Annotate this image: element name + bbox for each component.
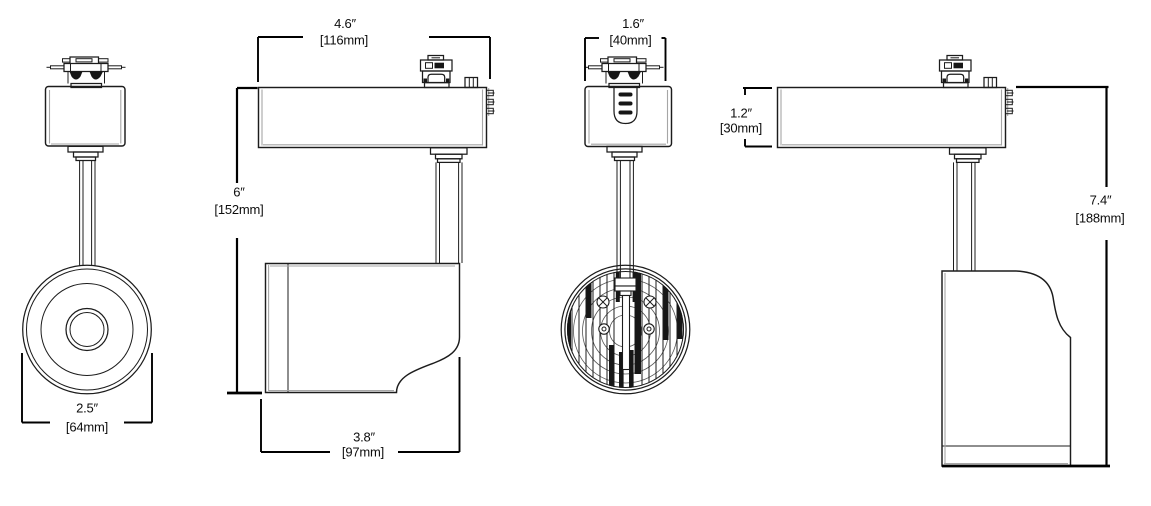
lamp-lens-front	[23, 265, 152, 394]
dimension-housing-height: 1.2″ [30mm]	[720, 88, 772, 147]
housing-assembly-side	[778, 56, 1014, 163]
view-rear: 1.6″ [40mm]	[561, 16, 690, 394]
dim-mount-height-mm: [152mm]	[214, 202, 263, 217]
view-front: 2.5″ [64mm]	[22, 57, 152, 435]
gear-housing-front	[585, 87, 672, 147]
track-adapter-front	[47, 57, 126, 88]
lamp-head-side-down	[942, 271, 1071, 466]
gear-housing-front	[46, 87, 126, 147]
stem	[80, 161, 95, 266]
dim-adapter-width-mm: [40mm]	[609, 33, 651, 48]
dim-housing-width-in: 4.6″	[334, 16, 356, 31]
pivot-ring	[644, 324, 654, 334]
pivot-ring	[599, 324, 609, 334]
stem	[436, 162, 462, 263]
dim-housing-height-mm: [30mm]	[720, 121, 762, 136]
dim-adapter-width-in: 1.6″	[622, 16, 644, 31]
dim-overall-height-mm: [188mm]	[1075, 211, 1124, 226]
housing-assembly-side	[259, 56, 495, 163]
technical-drawing: 2.5″ [64mm] 4.6″ [116mm]	[0, 0, 1151, 506]
lamp-head-side	[266, 264, 460, 393]
dimension-mount-height: 6″ [152mm]	[214, 88, 263, 393]
dimension-head-length: 3.8″ [97mm]	[261, 357, 460, 460]
dim-lens-diameter-mm: [64mm]	[66, 420, 108, 435]
phillips-screw	[597, 296, 609, 308]
track-adapter-front	[585, 57, 664, 88]
dim-overall-height-in: 7.4″	[1090, 193, 1112, 208]
vent-slot	[614, 87, 637, 124]
yoke-collar	[607, 146, 642, 160]
dim-head-length-in: 3.8″	[353, 430, 375, 445]
dim-mount-height-in: 6″	[233, 185, 245, 200]
dim-head-length-mm: [97mm]	[342, 445, 384, 460]
dim-housing-width-mm: [116mm]	[320, 33, 368, 48]
lamp-grille-rear	[561, 264, 690, 394]
dim-housing-height-in: 1.2″	[730, 106, 752, 121]
view-side-left: 4.6″ [116mm] 6″ [152mm] 3.8″ [97mm]	[214, 16, 494, 460]
view-side-right: 1.2″ [30mm] 7.4″ [188mm]	[720, 56, 1125, 467]
stem	[954, 162, 976, 270]
yoke-collar	[68, 146, 103, 160]
dimension-housing-width: 4.6″ [116mm]	[258, 16, 490, 82]
phillips-screw	[644, 296, 656, 308]
stem	[617, 161, 633, 279]
dim-lens-diameter-in: 2.5″	[76, 401, 98, 416]
